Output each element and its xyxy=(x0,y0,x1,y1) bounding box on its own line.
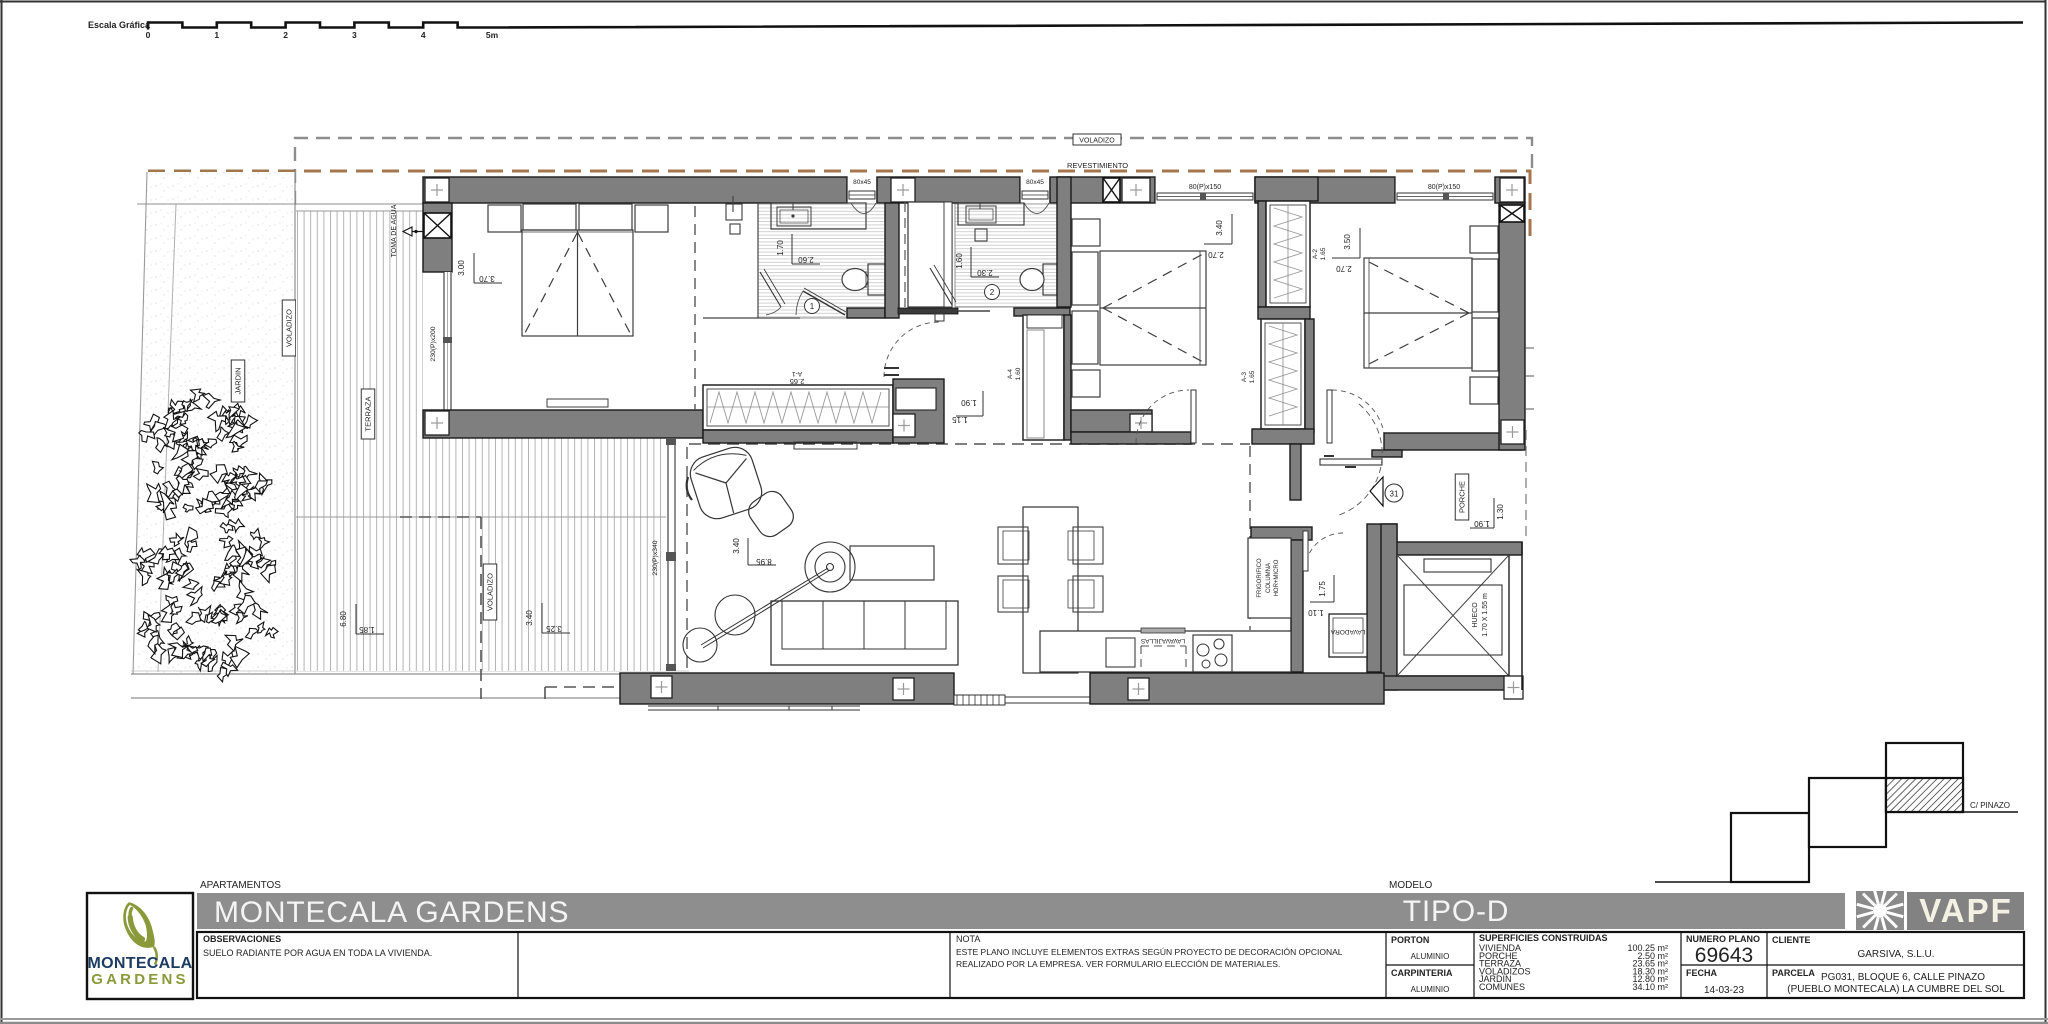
svg-text:80(P)x150: 80(P)x150 xyxy=(1189,184,1221,191)
svg-text:REALIZADO POR LA EMPRESA. VER: REALIZADO POR LA EMPRESA. VER FORMULARIO… xyxy=(956,959,1280,969)
svg-text:3.70: 3.70 xyxy=(479,274,495,283)
svg-text:PORTON: PORTON xyxy=(1391,935,1429,945)
svg-text:MONTECALA GARDENS: MONTECALA GARDENS xyxy=(214,896,569,929)
svg-text:230(P)x340: 230(P)x340 xyxy=(652,540,659,575)
svg-text:2: 2 xyxy=(283,30,288,40)
svg-text:ALUMINIO: ALUMINIO xyxy=(1411,985,1450,994)
svg-text:80x45: 80x45 xyxy=(1026,179,1044,186)
svg-text:80x45: 80x45 xyxy=(853,179,871,186)
svg-text:MONTECALA: MONTECALA xyxy=(88,955,193,972)
svg-text:1.60: 1.60 xyxy=(955,253,964,269)
svg-text:(PUEBLO MONTECALA) LA CUMBRE D: (PUEBLO MONTECALA) LA CUMBRE DEL SOL xyxy=(1787,984,2005,995)
svg-text:6.80: 6.80 xyxy=(339,611,348,627)
svg-text:SUPERFICIES CONSTRUIDAS: SUPERFICIES CONSTRUIDAS xyxy=(1479,933,1608,943)
svg-text:CLIENTE: CLIENTE xyxy=(1772,935,1811,945)
svg-text:REVESTIMIENTO: REVESTIMIENTO xyxy=(1067,161,1128,170)
svg-text:A-3: A-3 xyxy=(1241,372,1248,383)
svg-text:1.15: 1.15 xyxy=(952,415,968,424)
svg-text:2.60: 2.60 xyxy=(798,255,814,264)
svg-text:1.70: 1.70 xyxy=(776,240,785,256)
svg-text:2.70: 2.70 xyxy=(1208,250,1224,259)
svg-text:5m: 5m xyxy=(486,30,499,40)
svg-text:230(P)x200: 230(P)x200 xyxy=(430,326,437,361)
svg-text:LAVADORA: LAVADORA xyxy=(1330,628,1365,635)
svg-text:C/ PINAZO: C/ PINAZO xyxy=(1970,801,2010,810)
svg-text:TIPO-D: TIPO-D xyxy=(1403,895,1509,928)
svg-text:HOR+MICRO: HOR+MICRO xyxy=(1274,559,1280,596)
svg-text:A-1: A-1 xyxy=(792,370,803,377)
svg-text:LAVAVAJILLAS: LAVAVAJILLAS xyxy=(1140,637,1185,644)
svg-text:APARTAMENTOS: APARTAMENTOS xyxy=(200,880,281,891)
svg-text:NUMERO PLANO: NUMERO PLANO xyxy=(1686,934,1760,944)
svg-text:3.25: 3.25 xyxy=(546,624,562,633)
svg-text:1: 1 xyxy=(214,30,219,40)
svg-text:2.65: 2.65 xyxy=(790,377,805,386)
svg-text:3.00: 3.00 xyxy=(457,260,466,276)
svg-text:2.30: 2.30 xyxy=(977,268,993,277)
svg-text:80(P)x150: 80(P)x150 xyxy=(1428,184,1460,191)
svg-text:NOTA: NOTA xyxy=(956,934,980,944)
svg-text:1: 1 xyxy=(810,302,815,311)
svg-text:34.10 m²: 34.10 m² xyxy=(1632,982,1668,992)
svg-text:FECHA: FECHA xyxy=(1686,968,1717,978)
svg-text:1.65: 1.65 xyxy=(1320,247,1327,260)
svg-text:VAPF: VAPF xyxy=(1919,892,2013,929)
svg-text:3.40: 3.40 xyxy=(525,610,534,626)
svg-text:SUELO RADIANTE POR AGUA EN TOD: SUELO RADIANTE POR AGUA EN TODA LA VIVIE… xyxy=(203,948,432,958)
svg-text:GARDENS: GARDENS xyxy=(91,971,188,988)
svg-text:1.90: 1.90 xyxy=(961,398,977,407)
svg-text:VOLADIZO: VOLADIZO xyxy=(285,309,294,347)
svg-text:COLUMNA: COLUMNA xyxy=(1266,563,1272,593)
svg-text:ESTE PLANO INCLUYE ELEMENTOS E: ESTE PLANO INCLUYE ELEMENTOS EXTRAS SEGÚ… xyxy=(956,947,1343,957)
svg-text:1.70 X 1.55 m: 1.70 X 1.55 m xyxy=(1482,593,1489,637)
svg-text:1.90: 1.90 xyxy=(1474,519,1490,528)
svg-text:1.30: 1.30 xyxy=(1496,504,1505,520)
svg-text:A-2: A-2 xyxy=(1312,249,1319,260)
svg-text:PG031, BLOQUE 6, CALLE PINAZO: PG031, BLOQUE 6, CALLE PINAZO xyxy=(1821,972,1985,983)
svg-text:3.50: 3.50 xyxy=(1343,234,1352,250)
svg-text:2: 2 xyxy=(990,288,995,297)
svg-text:Escala Gráfica: Escala Gráfica xyxy=(88,20,151,30)
svg-text:VOLADIZO: VOLADIZO xyxy=(486,573,495,611)
svg-text:3.40: 3.40 xyxy=(732,538,741,554)
svg-text:COMUNES: COMUNES xyxy=(1479,982,1525,992)
svg-text:A-4: A-4 xyxy=(1007,369,1014,380)
svg-text:TOMA DE AGUA: TOMA DE AGUA xyxy=(391,204,398,257)
svg-text:1.60: 1.60 xyxy=(1015,367,1022,380)
svg-text:JARDIN: JARDIN xyxy=(234,367,243,394)
svg-text:69643: 69643 xyxy=(1695,944,1753,967)
svg-text:ALUMINIO: ALUMINIO xyxy=(1411,952,1450,961)
svg-text:GARSIVA, S.L.U.: GARSIVA, S.L.U. xyxy=(1857,949,1934,960)
svg-text:31: 31 xyxy=(1390,490,1399,499)
svg-text:4: 4 xyxy=(421,30,426,40)
svg-text:PARCELA: PARCELA xyxy=(1772,968,1815,978)
svg-text:14-03-23: 14-03-23 xyxy=(1704,985,1744,996)
svg-text:1.85: 1.85 xyxy=(359,625,375,634)
svg-text:VOLADIZO: VOLADIZO xyxy=(1079,138,1115,145)
svg-text:CARPINTERIA: CARPINTERIA xyxy=(1391,968,1453,978)
svg-text:3.40: 3.40 xyxy=(1215,220,1224,236)
svg-text:MODELO: MODELO xyxy=(1389,880,1433,891)
svg-text:PORCHE: PORCHE xyxy=(1458,481,1467,513)
svg-text:TERRAZA: TERRAZA xyxy=(364,396,373,431)
svg-text:3: 3 xyxy=(352,30,357,40)
svg-text:1.65: 1.65 xyxy=(1249,370,1256,383)
svg-text:OBSERVACIONES: OBSERVACIONES xyxy=(203,934,281,944)
svg-text:FRIGORIFICO: FRIGORIFICO xyxy=(1257,558,1263,598)
svg-text:2.70: 2.70 xyxy=(1336,264,1352,273)
svg-text:8.95: 8.95 xyxy=(756,557,772,566)
svg-text:HUECO: HUECO xyxy=(1472,602,1479,628)
svg-text:1.10: 1.10 xyxy=(1308,608,1324,617)
svg-text:1.75: 1.75 xyxy=(1318,581,1327,597)
svg-text:0: 0 xyxy=(146,30,151,40)
